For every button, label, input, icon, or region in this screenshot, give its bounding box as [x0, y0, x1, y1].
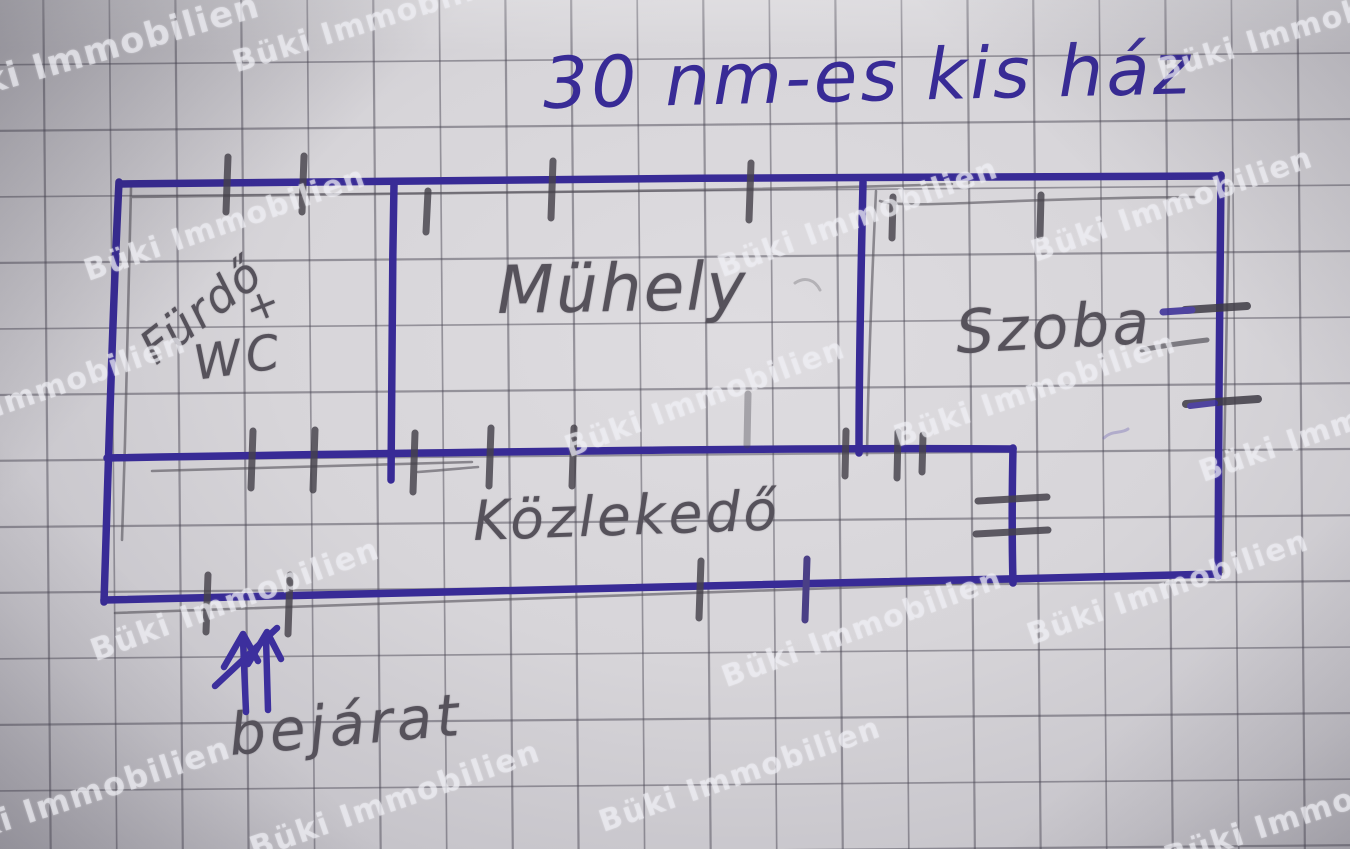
wall-muhely-szoba: [859, 182, 863, 453]
room-label-szoba: Szoba: [954, 293, 1153, 363]
floor-plan-photo: 30 nm-es kis ház Fürdő + WC Mühely Szoba…: [0, 0, 1350, 849]
pencil-guide-lines: [115, 183, 1229, 613]
faint-smudge: [1104, 429, 1128, 438]
wall-furdo-muhely: [391, 184, 394, 480]
floor-plan-drawing: [0, 0, 1350, 849]
wall-top: [120, 176, 1221, 184]
wall-left: [104, 182, 119, 602]
room-label-kozlekedo: Közlekedő: [472, 483, 781, 549]
plan-title: 30 nm-es kis ház: [542, 33, 1194, 119]
wall-bottom: [104, 574, 1218, 600]
wall-right: [1218, 175, 1221, 576]
window-marks: [1163, 306, 1258, 406]
tick-mark-ink: [805, 559, 807, 620]
wall-corridor-top: [107, 449, 1013, 458]
faint-smudge: [795, 279, 820, 290]
furdo-label-line2: WC: [191, 328, 288, 388]
room-label-muhely: Mühely: [496, 254, 748, 324]
wall-corridor-right: [1012, 448, 1013, 583]
wall-tick-marks: [206, 156, 1041, 634]
